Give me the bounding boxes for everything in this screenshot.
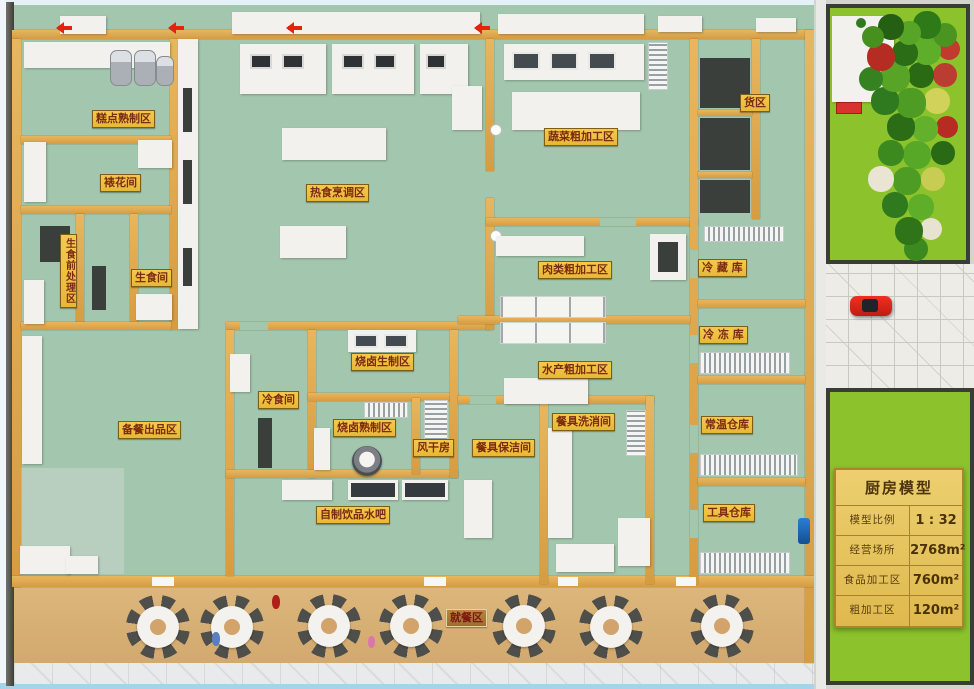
- worktable: [512, 92, 640, 130]
- label-tableware-storage-room: 餐具保洁间: [472, 439, 535, 457]
- cabinet: [314, 428, 330, 470]
- wall: [76, 214, 84, 326]
- wall: [805, 30, 814, 663]
- person-figure: [212, 632, 220, 646]
- door: [424, 577, 446, 586]
- info-row-value: 120m²: [909, 596, 962, 626]
- mini-red-sign: [836, 102, 862, 114]
- wall: [752, 39, 760, 219]
- wall: [21, 206, 171, 214]
- wall: [698, 376, 805, 384]
- cooktop: [374, 54, 396, 69]
- label-freezer-storage: 冷 冻 库: [699, 326, 748, 344]
- door: [676, 577, 696, 586]
- cooktop: [342, 54, 364, 69]
- dining-table: [579, 595, 643, 659]
- bar-window: [402, 480, 448, 500]
- counter: [548, 428, 572, 538]
- slat-table: [364, 402, 408, 418]
- wall: [412, 398, 420, 474]
- service-counter: [22, 336, 42, 464]
- person-figure: [368, 636, 375, 648]
- prep-island: [452, 86, 482, 130]
- drying-rack: [424, 400, 448, 444]
- label-cake-decorating-room: 裱花间: [100, 174, 141, 192]
- doorway-opening: [700, 180, 750, 213]
- partition-window: [183, 248, 192, 286]
- label-dining-area: 就餐区: [446, 609, 487, 627]
- label-aquatic-rough-processing-area: 水产粗加工区: [538, 361, 612, 379]
- water-dispenser: [798, 518, 810, 544]
- label-raw-food-room: 生食间: [131, 269, 172, 287]
- info-row: 粗加工区 120m²: [836, 596, 962, 626]
- info-row-value: 2768m²: [909, 536, 965, 565]
- cabinet: [230, 354, 250, 392]
- cabinet: [464, 480, 492, 538]
- label-vegetable-rough-processing-area: 蔬菜粗加工区: [544, 128, 618, 146]
- cabinet: [24, 142, 46, 202]
- info-board-title: 厨房模型: [836, 470, 962, 506]
- dining-table: [492, 594, 556, 658]
- label-tableware-washing-room: 餐具洗消间: [552, 413, 615, 431]
- door-gap: [690, 425, 698, 453]
- red-arrow-marker: [476, 26, 490, 30]
- shelf-rack: [700, 454, 798, 476]
- label-ambient-warehouse: 常温仓库: [701, 416, 753, 434]
- wall: [486, 218, 698, 226]
- label-meat-rough-processing-area: 肉类粗加工区: [538, 261, 612, 279]
- door-gap: [690, 250, 698, 278]
- label-air-drying-room: 风干房: [413, 439, 454, 457]
- roof-block: [60, 16, 106, 34]
- info-row-label: 经营场所: [836, 536, 909, 565]
- sink-basin: [550, 52, 578, 70]
- red-arrow-marker: [58, 26, 72, 30]
- worktable: [138, 140, 172, 168]
- red-arrow-marker: [170, 26, 184, 30]
- roof-block: [756, 18, 796, 32]
- door-gap: [690, 510, 698, 538]
- wall: [690, 39, 698, 584]
- counter: [24, 280, 44, 324]
- info-row-label: 粗加工区: [836, 596, 909, 626]
- prep-island: [282, 128, 386, 160]
- vent-unit: [648, 42, 668, 90]
- building-block: [832, 16, 894, 102]
- info-board: 厨房模型 模型比例 1 : 32 经营场所 2768m² 食品加工区 760m²…: [834, 468, 964, 628]
- cabinet-window: [658, 242, 678, 272]
- label-food-prep-output-area: 备餐出品区: [118, 421, 181, 439]
- door-gap: [470, 396, 496, 404]
- steamer-pot: [352, 446, 382, 476]
- storage-tank: [134, 50, 156, 86]
- label-braise-cooked-production-area: 烧卤熟制区: [333, 419, 396, 437]
- door-gap: [690, 335, 698, 363]
- shelf-rack: [700, 552, 790, 574]
- label-braise-raw-production-area: 烧卤生制区: [351, 353, 414, 371]
- label-goods-area: 货区: [740, 94, 770, 112]
- label-pastry-cooking-area: 糕点熟制区: [92, 110, 155, 128]
- dark-panel: [258, 418, 272, 468]
- table-edge-stripe: [816, 0, 826, 689]
- prep-island: [280, 226, 346, 258]
- cooktop: [282, 54, 304, 69]
- label-homemade-drinks-bar: 自制饮品水吧: [316, 506, 390, 524]
- dark-panel: [92, 266, 106, 310]
- vent-unit: [704, 226, 784, 242]
- toy-car: [850, 296, 892, 316]
- bar-counter: [282, 480, 332, 500]
- door-gap: [600, 218, 636, 226]
- storage-tank: [110, 50, 132, 86]
- counter: [20, 546, 70, 574]
- counter: [496, 236, 584, 256]
- label-cold-storage: 冷 藏 库: [698, 259, 747, 277]
- dining-table: [297, 594, 361, 658]
- shelf-rack: [700, 352, 790, 374]
- dining-table: [200, 595, 264, 659]
- counter: [66, 556, 98, 574]
- roof-block: [658, 16, 702, 32]
- roof-block: [498, 14, 644, 34]
- wall: [698, 478, 805, 486]
- red-arrow-marker: [288, 26, 302, 30]
- wall: [486, 39, 494, 171]
- doorway-opening: [700, 118, 750, 170]
- partition-window: [183, 88, 192, 132]
- info-row-label: 食品加工区: [836, 566, 909, 595]
- cooktop: [426, 54, 446, 69]
- sink-row: [500, 296, 606, 318]
- counter: [136, 294, 172, 320]
- bar-window: [348, 480, 398, 500]
- counter: [556, 544, 614, 572]
- dining-table: [379, 594, 443, 658]
- dish-rack: [626, 410, 646, 456]
- dining-table: [126, 595, 190, 659]
- stove-unit: [332, 44, 414, 94]
- sink-basin: [384, 334, 408, 348]
- marble-walkway: [14, 663, 814, 684]
- person-figure: [272, 595, 280, 609]
- partition-window: [183, 160, 192, 204]
- info-row: 经营场所 2768m²: [836, 536, 962, 566]
- wall: [226, 470, 458, 478]
- road: [826, 264, 974, 388]
- info-row: 模型比例 1 : 32: [836, 506, 962, 536]
- info-row-label: 模型比例: [836, 506, 909, 535]
- stove-unit: [240, 44, 326, 94]
- sink-basin: [512, 52, 540, 70]
- refrigerator: [618, 518, 650, 566]
- wall: [12, 39, 21, 587]
- kitchen-model-photo: 糕点熟制区 裱花间 生食前处理区 生食间 热食烹调区 蔬菜粗加工区 货区 肉类粗…: [0, 0, 974, 689]
- label-tool-warehouse: 工具仓库: [703, 504, 755, 522]
- info-row-value: 1 : 32: [909, 506, 962, 535]
- worktable: [504, 378, 588, 404]
- info-row-value: 760m²: [909, 566, 962, 595]
- cooktop: [250, 54, 272, 69]
- flower-bed: [856, 18, 866, 28]
- label-raw-food-pretreatment-area: 生食前处理区: [60, 234, 77, 308]
- car-windshield: [862, 299, 878, 312]
- wall: [698, 300, 805, 308]
- wall: [540, 404, 548, 584]
- sink-basin: [354, 334, 378, 348]
- label-cold-food-room: 冷食间: [258, 391, 299, 409]
- storage-tank: [156, 56, 174, 86]
- dining-table: [690, 594, 754, 658]
- door-gap: [240, 322, 268, 330]
- hood-canopy: [232, 12, 480, 34]
- sink-basin: [588, 52, 616, 70]
- door: [152, 577, 174, 586]
- wall: [698, 172, 752, 178]
- door: [558, 577, 578, 586]
- info-row: 食品加工区 760m²: [836, 566, 962, 596]
- sink-row: [500, 322, 606, 344]
- hand-sink: [490, 124, 502, 136]
- label-hot-food-cooking-area: 热食烹调区: [306, 184, 369, 202]
